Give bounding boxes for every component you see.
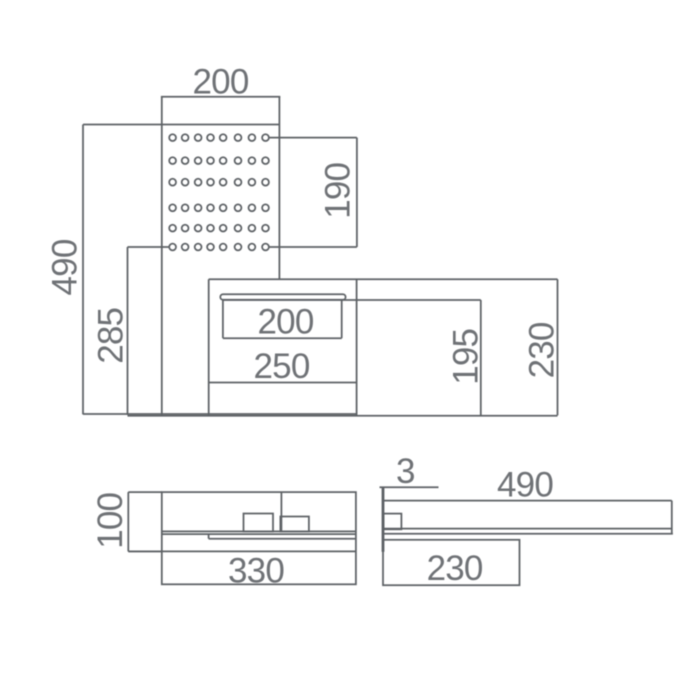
svg-text:230: 230	[427, 549, 483, 588]
svg-text:490: 490	[497, 466, 553, 505]
svg-text:250: 250	[254, 347, 310, 386]
svg-text:200: 200	[193, 63, 249, 102]
svg-text:230: 230	[523, 322, 562, 378]
svg-text:330: 330	[228, 552, 284, 591]
svg-text:100: 100	[91, 492, 130, 548]
svg-text:195: 195	[447, 329, 486, 385]
svg-text:3: 3	[396, 452, 415, 491]
svg-text:190: 190	[319, 162, 358, 218]
svg-text:285: 285	[92, 308, 131, 364]
svg-text:490: 490	[45, 239, 84, 295]
svg-text:200: 200	[258, 303, 314, 342]
